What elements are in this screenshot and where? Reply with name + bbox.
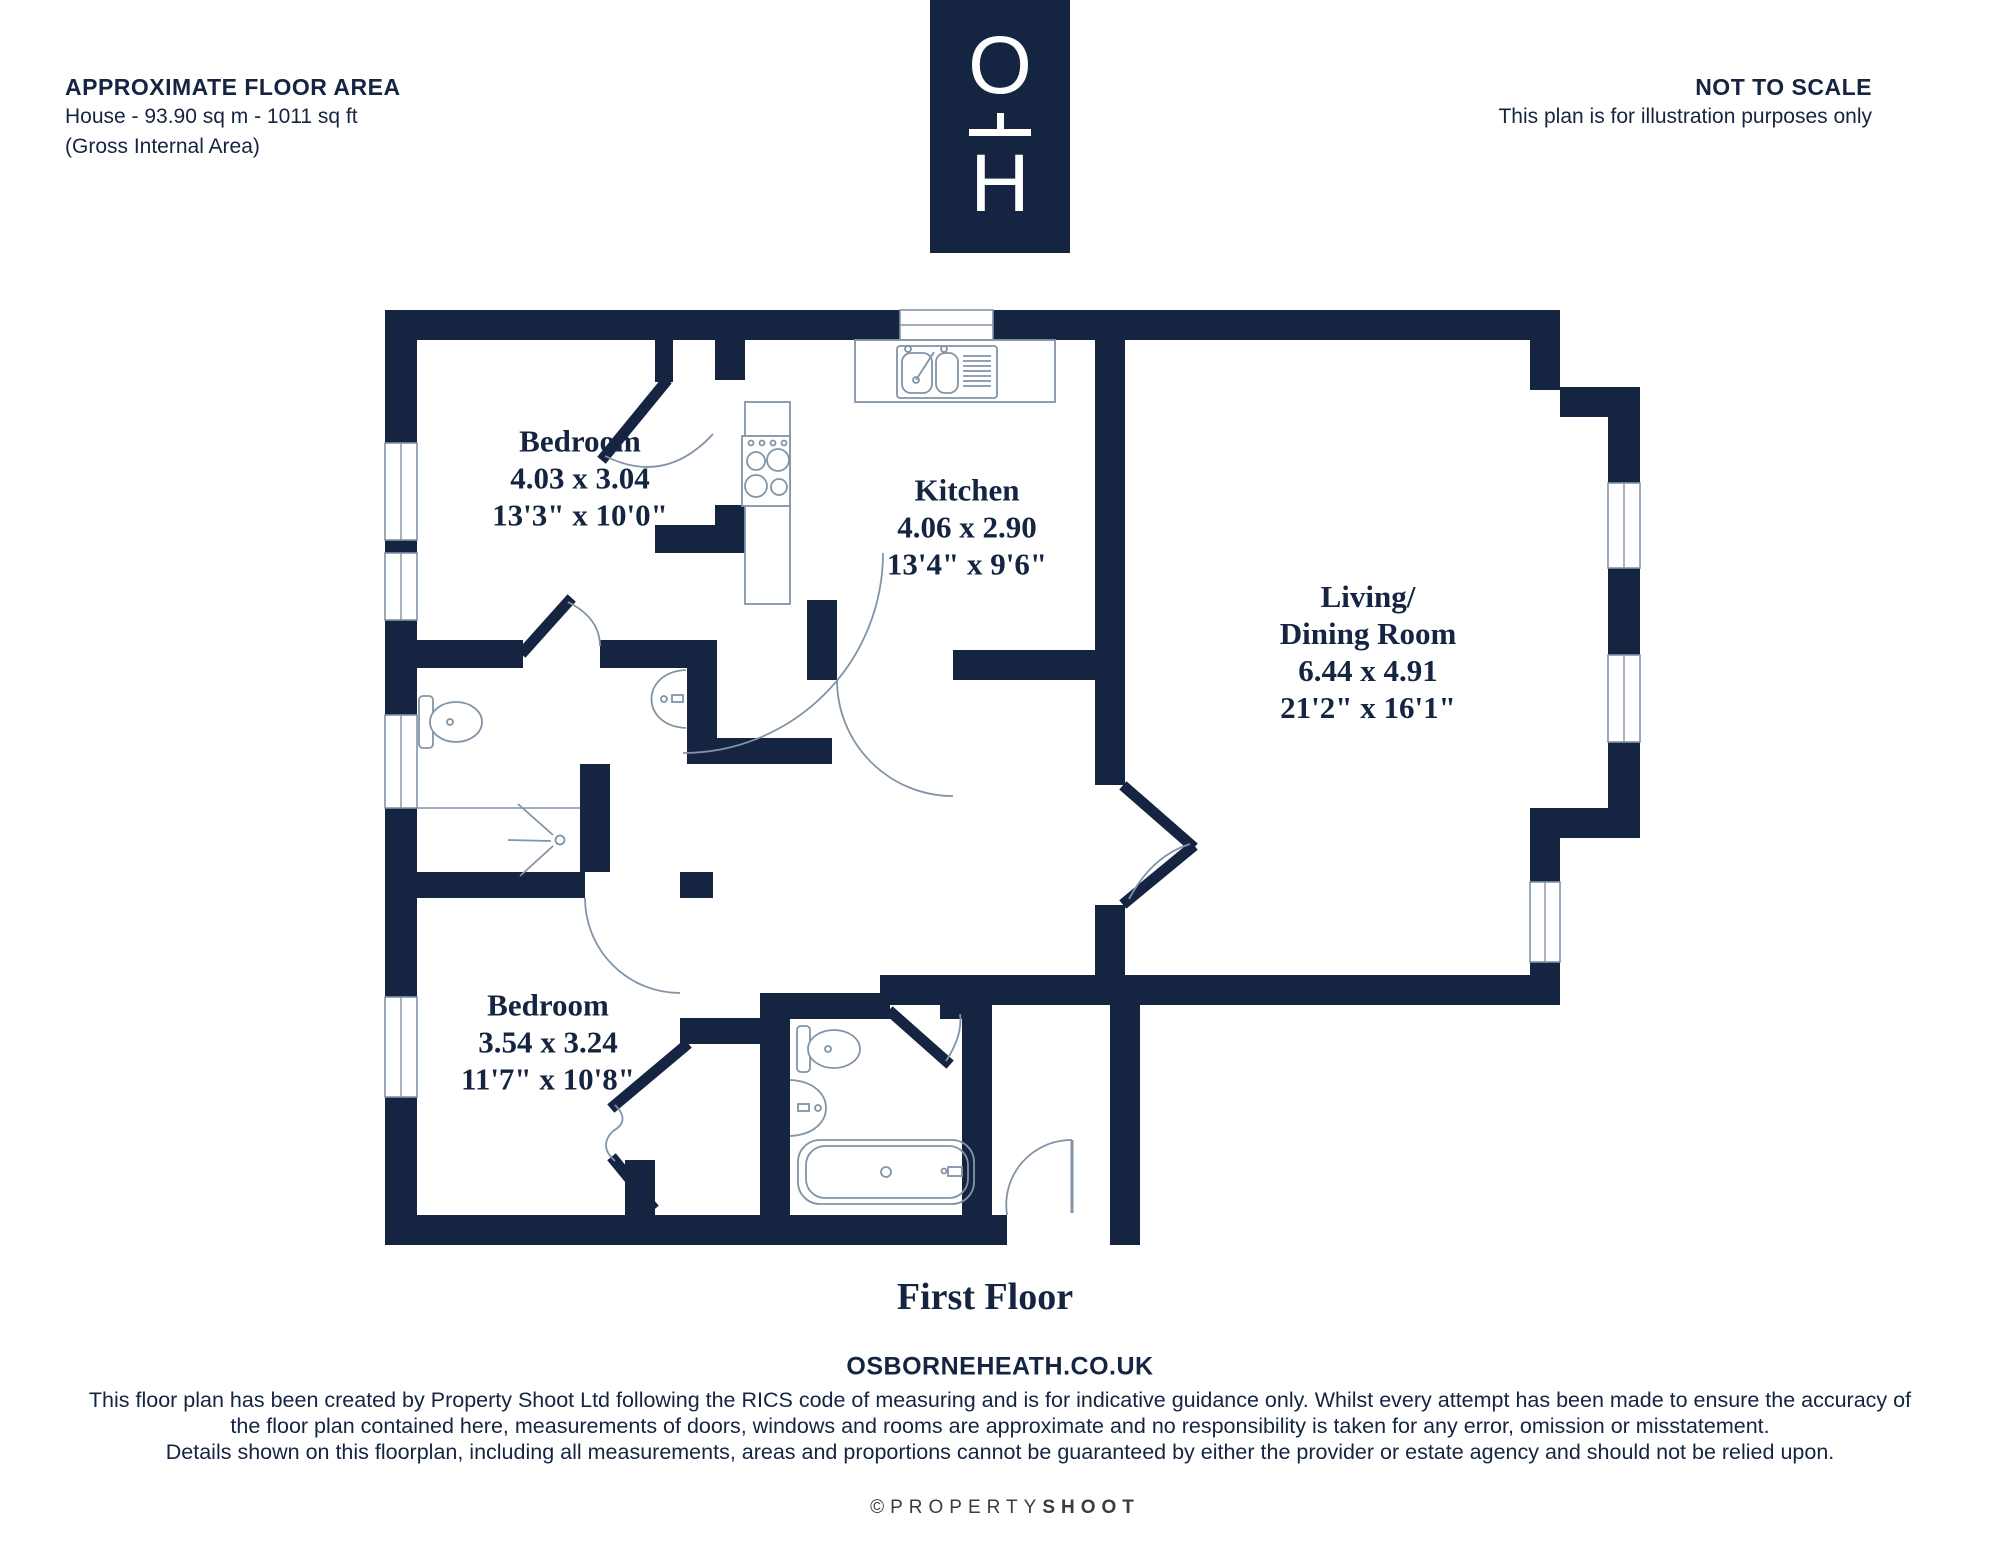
floor-title: First Floor — [897, 1275, 1073, 1319]
kitchen-door-arc — [837, 680, 953, 796]
bedroom1-label: Bedroom 4.03 x 3.04 13'3" x 10'0" — [492, 423, 668, 534]
bedroom2-label: Bedroom 3.54 x 3.24 11'7" x 10'8" — [461, 987, 635, 1098]
bathtub-icon — [798, 1140, 974, 1204]
copyright-shoot: SHOOT — [1042, 1497, 1140, 1518]
bathroom2-door-arc — [946, 1014, 960, 1061]
toilet-icon — [419, 696, 482, 748]
room-name: Living/ — [1280, 578, 1457, 615]
toilet2-icon — [797, 1026, 860, 1072]
stove-icon — [742, 436, 790, 506]
floorplan-page: APPROXIMATE FLOOR AREA House - 93.90 sq … — [0, 0, 2000, 1545]
bathroom1-fixtures — [417, 670, 686, 876]
website-url: OSBORNEHEATH.CO.UK — [846, 1353, 1153, 1382]
bathroom-door-arc — [568, 602, 600, 646]
room-name: Bedroom — [461, 987, 635, 1024]
entrance-door-arc — [1006, 1140, 1072, 1215]
copyright-symbol: © — [870, 1497, 890, 1518]
disclaimer-text: This floor plan has been created by Prop… — [20, 1387, 1980, 1465]
disclaimer-line1: This floor plan has been created by Prop… — [20, 1387, 1980, 1413]
room-name: Kitchen — [887, 472, 1047, 509]
disclaimer-line3: Details shown on this floorplan, includi… — [20, 1439, 1980, 1465]
bathroom2-door-leaf — [893, 1014, 946, 1061]
room-size-imperial: 11'7" x 10'8" — [461, 1061, 635, 1098]
room-name-line2: Dining Room — [1280, 615, 1457, 652]
room-size-metric: 4.03 x 3.04 — [492, 460, 668, 497]
living-double-door-leaf-bottom — [1127, 849, 1190, 901]
propertyshoot-credit: ©PROPERTYSHOOT — [870, 1497, 1140, 1519]
bathroom2-fixtures — [790, 1026, 974, 1204]
room-size-imperial: 13'4" x 9'6" — [887, 546, 1047, 583]
basin2-icon — [790, 1080, 826, 1136]
room-name: Bedroom — [492, 423, 668, 460]
disclaimer-line2: the floor plan contained here, measureme… — [20, 1413, 1980, 1439]
room-size-imperial: 13'3" x 10'0" — [492, 497, 668, 534]
room-size-metric: 4.06 x 2.90 — [887, 509, 1047, 546]
living-dining-label: Living/ Dining Room 6.44 x 4.91 21'2" x … — [1280, 578, 1457, 726]
room-size-metric: 3.54 x 3.24 — [461, 1024, 635, 1061]
living-double-door-leaf-top — [1127, 789, 1190, 844]
bedroom2-top-door-arc — [585, 898, 680, 993]
kitchen-sink-icon — [897, 346, 997, 398]
copyright-property: PROPERTY — [890, 1497, 1042, 1518]
shower-icon — [417, 804, 580, 876]
basin-icon — [652, 670, 687, 728]
room-size-imperial: 21'2" x 16'1" — [1280, 689, 1457, 726]
bathroom-door-leaf — [525, 602, 568, 650]
room-size-metric: 6.44 x 4.91 — [1280, 652, 1457, 689]
kitchen-label: Kitchen 4.06 x 2.90 13'4" x 9'6" — [887, 472, 1047, 583]
